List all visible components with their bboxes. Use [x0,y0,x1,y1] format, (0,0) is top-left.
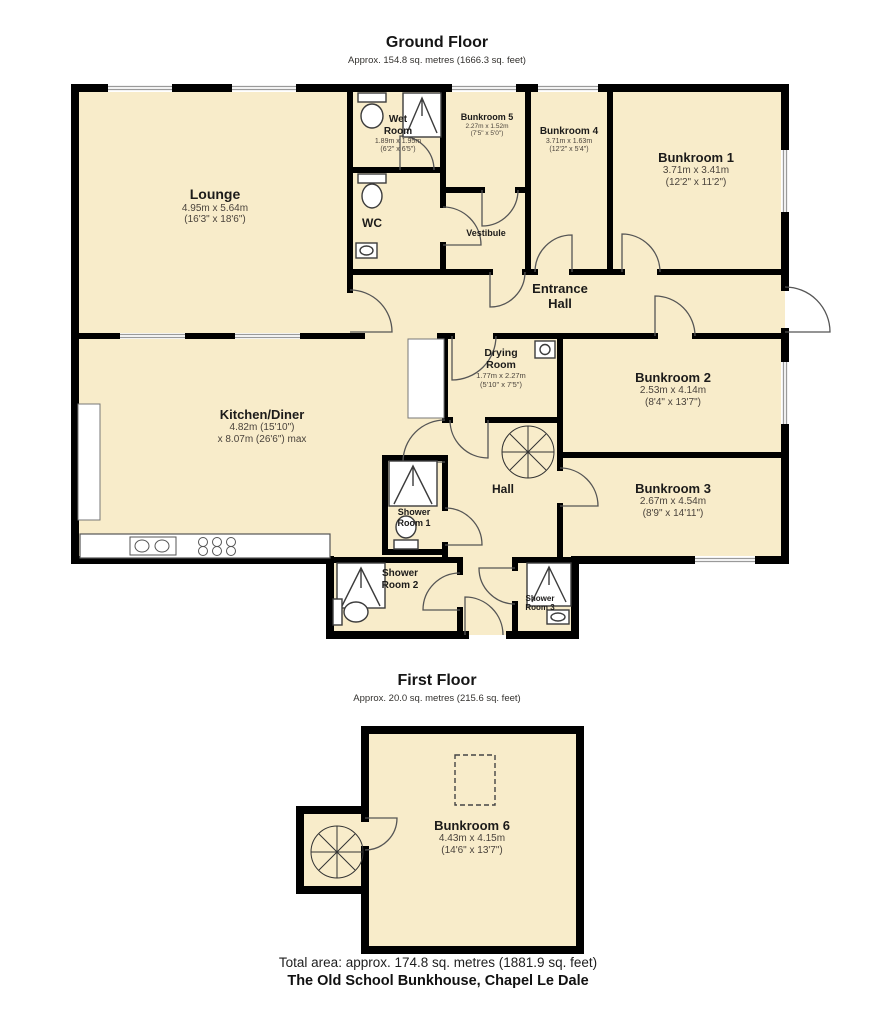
room-dims-imperial: (12'2" x 11'2") [666,177,727,189]
room-dims-metric: 4.43m x 4.15m [439,833,505,845]
room-dims-metric: 2.53m x 4.14m [640,385,706,397]
room-dims-imperial: (8'4" x 13'7") [645,397,701,409]
room-label-wc: WC [362,216,382,230]
room-name: Bunkroom 5 [461,112,514,123]
room-dims-metric: 3.71m x 1.63m [546,138,592,146]
shower-icon [389,461,437,506]
room-dims-imperial: (12'2" x 5'4") [549,146,588,154]
room-label-bunkroom-5: Bunkroom 5 2.27m x 1.52m (7'5" x 5'0") [461,112,514,138]
room-dims-imperial: (16'3" x 18'6") [184,214,246,226]
room-name: Bunkroom 1 [658,150,734,165]
room-label-bunkroom-3: Bunkroom 3 2.67m x 4.54m (8'9" x 14'11") [635,481,711,520]
room-dims-imperial: x 8.07m (26'6") max [218,434,307,446]
room-label-drying-room: Drying Room 1.77m x 2.27m (5'10" x 7'5") [476,347,526,389]
room-dims-imperial: (5'10" x 7'5") [480,381,522,390]
room-label-hall: Hall [492,482,514,496]
room-dims-imperial: (8'9" x 14'11") [643,508,704,520]
room-dims-imperial: (7'5" x 5'0") [471,130,504,138]
room-label-vestibule: Vestibule [466,228,506,239]
room-label-shower-room-1: Shower Room 1 [391,507,437,528]
room-name: Vestibule [466,228,506,239]
total-area-text: Total area: approx. 174.8 sq. metres (18… [279,955,597,970]
room-name: Bunkroom 3 [635,481,711,496]
room-dims-metric: 3.71m x 3.41m [663,165,729,177]
spiral-staircase-icon [502,426,554,478]
floorplan-page: Ground Floor Approx. 154.8 sq. metres (1… [0,0,886,1029]
room-label-bunkroom-6: Bunkroom 6 4.43m x 4.15m (14'6" x 13'7") [434,818,510,857]
room-label-entrance-hall: Entrance Hall [523,281,597,312]
room-name: Bunkroom 4 [540,126,598,138]
room-dims-metric: 4.82m (15'10") [230,422,295,434]
worktop [78,404,100,520]
room-label-wet-room: Wet Room 1.89m x 1.95m (6'2" x 6'5") [375,114,421,154]
room-name: Drying Room [478,347,524,372]
first-floor-title: First Floor [397,672,476,690]
room-name: Shower Room 3 [520,594,560,613]
room-name: Lounge [190,186,241,203]
hob-icon [199,538,236,556]
room-dims-metric: 2.27m x 1.52m [465,123,508,131]
room-name: Kitchen/Diner [220,407,305,422]
room-label-bunkroom-4: Bunkroom 4 3.71m x 1.63m (12'2" x 5'4") [540,126,598,154]
kitchen-counter [80,534,330,558]
room-label-kitchen-diner: Kitchen/Diner 4.82m (15'10") x 8.07m (26… [218,407,307,446]
room-name: WC [362,216,382,230]
room-name: Bunkroom 6 [434,818,510,833]
room-label-shower-room-3: Shower Room 3 [520,594,560,613]
room-name: Shower Room 1 [391,507,437,528]
room-label-lounge: Lounge 4.95m x 5.64m (16'3" x 18'6") [182,186,248,226]
floorplan-drawing [0,0,886,1029]
room-name: Shower Room 2 [375,568,425,592]
washing-machine-icon [535,341,555,358]
room-name: Wet Room [379,114,417,138]
ground-floor-subtitle: Approx. 154.8 sq. metres (1666.3 sq. fee… [348,55,526,66]
room-name: Hall [492,482,514,496]
room-dims-metric: 1.89m x 1.95m [375,138,421,146]
cupboard [408,339,444,418]
room-dims-imperial: (14'6" x 13'7") [441,845,503,857]
ground-floor-title: Ground Floor [386,34,488,52]
room-dims-imperial: (6'2" x 6'5") [380,146,415,154]
room-dims-metric: 2.67m x 4.54m [640,496,706,508]
spiral-staircase-icon [311,826,363,878]
room-dims-metric: 4.95m x 5.64m [182,203,248,215]
first-floor-subtitle: Approx. 20.0 sq. metres (215.6 sq. feet) [353,693,520,704]
room-name: Entrance Hall [523,281,597,312]
property-name-text: The Old School Bunkhouse, Chapel Le Dale [287,973,588,989]
sink-icon [356,243,377,258]
room-name: Bunkroom 2 [635,370,711,385]
room-label-bunkroom-1: Bunkroom 1 3.71m x 3.41m (12'2" x 11'2") [658,150,734,189]
room-label-bunkroom-2: Bunkroom 2 2.53m x 4.14m (8'4" x 13'7") [635,370,711,409]
room-label-shower-room-2: Shower Room 2 [375,568,425,592]
